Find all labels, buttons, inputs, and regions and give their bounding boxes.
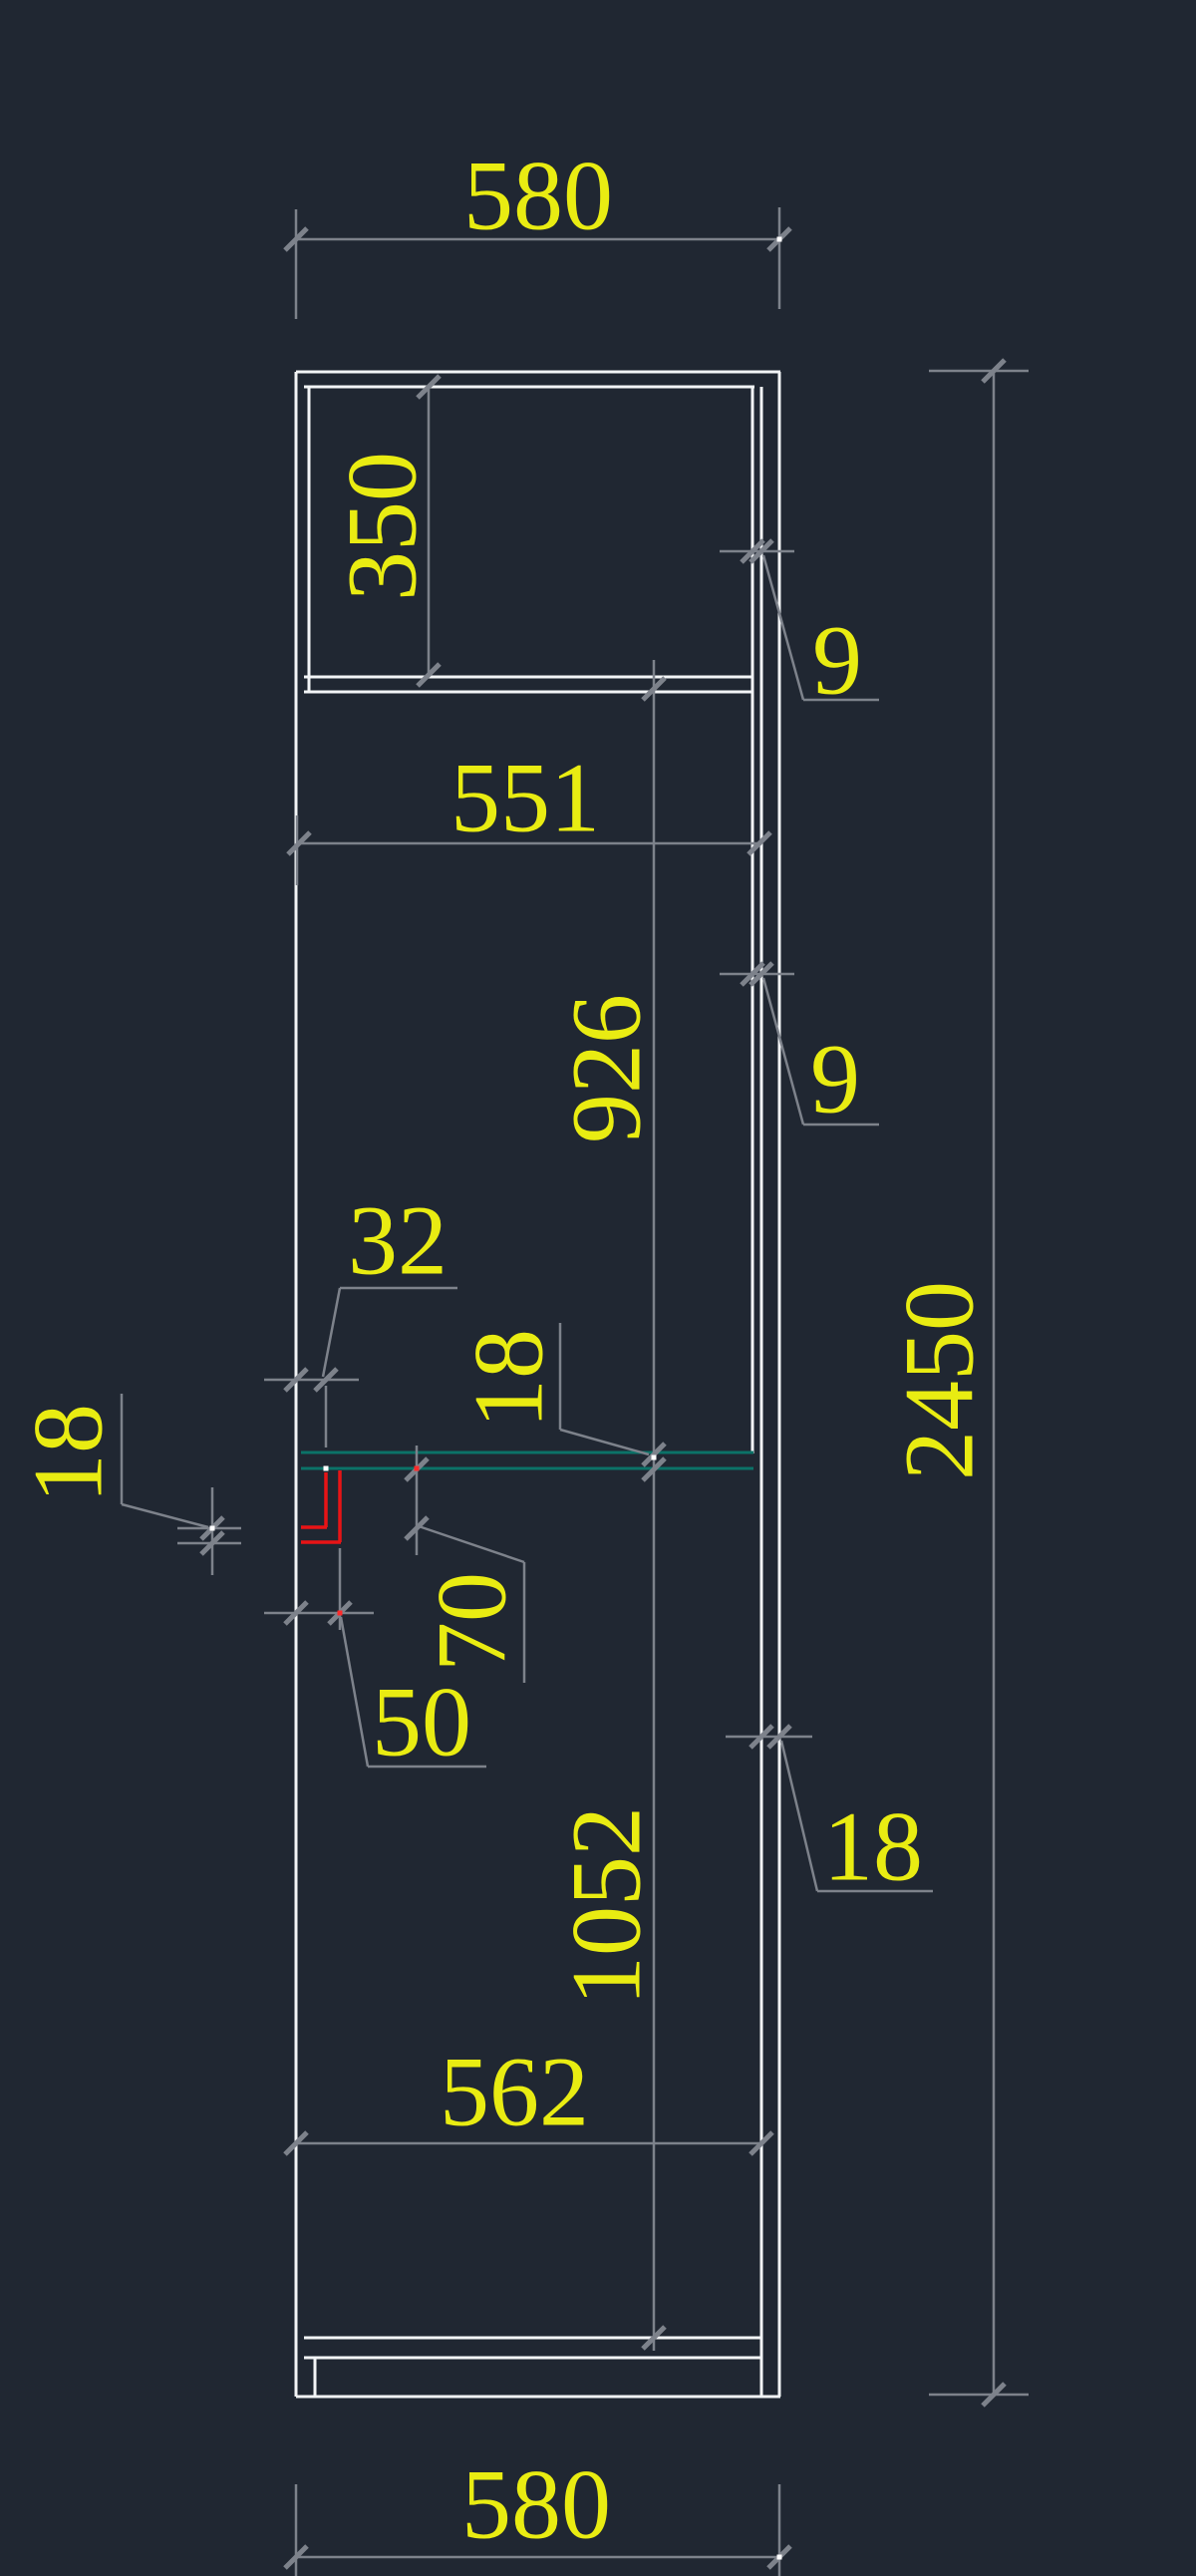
snap-point-icon bbox=[415, 1466, 420, 1471]
leader-line[interactable] bbox=[341, 1617, 368, 1767]
leader-line[interactable] bbox=[781, 1741, 817, 1891]
dimension-text[interactable]: 18 bbox=[823, 1791, 923, 1902]
dimension-text[interactable]: 2450 bbox=[884, 1281, 995, 1480]
snap-point-icon bbox=[777, 237, 782, 242]
dimension-text[interactable]: 70 bbox=[417, 1572, 527, 1672]
cad-canvas[interactable]: 5803509551926932182450187050105218562580 bbox=[0, 0, 1196, 2576]
dimension-text[interactable]: 9 bbox=[812, 605, 862, 716]
dimension-text[interactable]: 50 bbox=[372, 1667, 471, 1777]
leader-line[interactable] bbox=[763, 978, 803, 1125]
dimension-text[interactable]: 580 bbox=[463, 141, 613, 251]
dimension-text[interactable]: 18 bbox=[13, 1404, 124, 1503]
dimension-text[interactable]: 18 bbox=[453, 1329, 564, 1429]
snap-point-icon bbox=[777, 2555, 782, 2560]
dimension-text[interactable]: 562 bbox=[440, 2037, 589, 2147]
leader-line[interactable] bbox=[419, 1526, 524, 1562]
leader-line[interactable] bbox=[763, 555, 803, 700]
leader-line[interactable] bbox=[323, 1288, 340, 1377]
dimension-text[interactable]: 1052 bbox=[551, 1806, 662, 2006]
dimension-text[interactable]: 9 bbox=[810, 1024, 860, 1134]
snap-point-icon bbox=[210, 1526, 215, 1531]
dimension-text[interactable]: 926 bbox=[551, 994, 662, 1143]
snap-point-icon bbox=[338, 1611, 343, 1616]
snap-point-icon bbox=[324, 1466, 329, 1471]
leader-line[interactable] bbox=[122, 1504, 208, 1527]
dimension-text[interactable]: 551 bbox=[450, 743, 600, 853]
dimension-text[interactable]: 350 bbox=[327, 452, 438, 601]
dimension-text[interactable]: 32 bbox=[348, 1185, 448, 1296]
snap-point-icon bbox=[652, 1455, 657, 1460]
cad-drawing-layer: 5803509551926932182450187050105218562580 bbox=[0, 0, 1196, 2576]
dimension-text[interactable]: 580 bbox=[461, 2449, 611, 2560]
leader-line[interactable] bbox=[560, 1430, 649, 1454]
